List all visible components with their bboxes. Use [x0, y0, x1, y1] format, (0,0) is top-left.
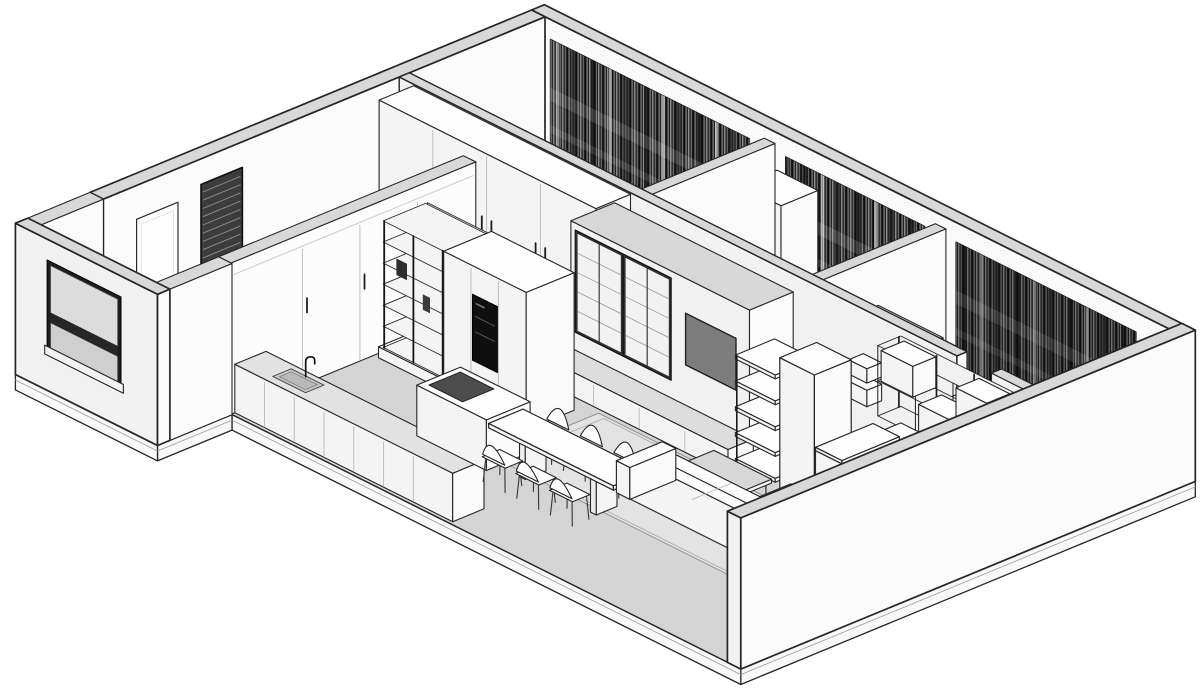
- scene: [15, 5, 1195, 685]
- page: [0, 0, 1200, 696]
- apartment-axonometric-rendering: [0, 0, 1200, 696]
